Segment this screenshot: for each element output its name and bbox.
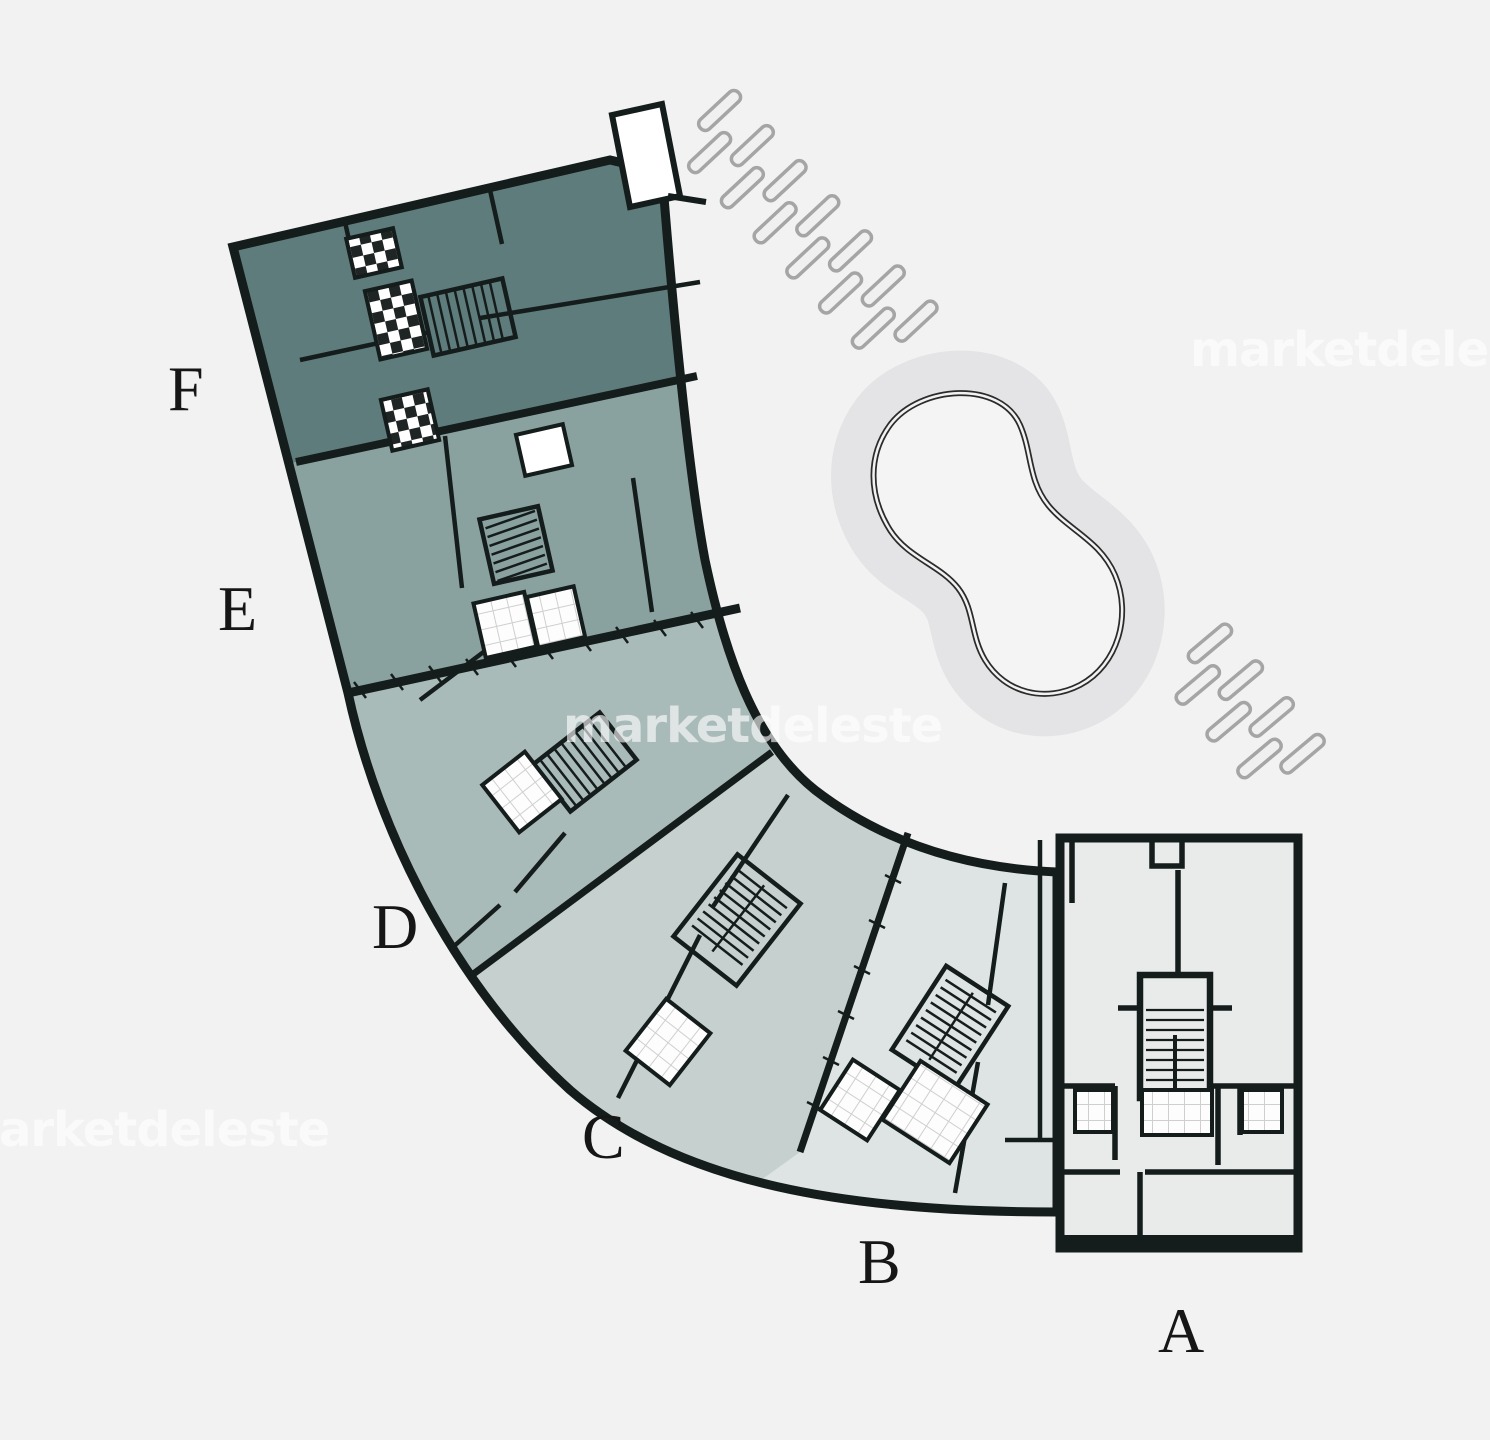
section-A-bathrooms bbox=[1075, 1090, 1282, 1135]
section-label-C[interactable]: C bbox=[582, 1101, 625, 1172]
section-label-D[interactable]: D bbox=[372, 891, 418, 962]
section-label-F[interactable]: F bbox=[168, 353, 204, 424]
floor-plan-stage: F E D C B A marketdeleste marketdeleste … bbox=[0, 0, 1490, 1440]
section-label-A[interactable]: A bbox=[1158, 1295, 1204, 1366]
section-label-E[interactable]: E bbox=[218, 573, 257, 644]
watermark-center: marketdeleste bbox=[563, 698, 942, 754]
section-label-B[interactable]: B bbox=[858, 1226, 901, 1297]
section-A-bottom-wall bbox=[1060, 1235, 1298, 1249]
watermark-top-right: marketdeleste bbox=[1190, 322, 1490, 378]
floor-plan-canvas: F E D C B A marketdeleste marketdeleste … bbox=[0, 0, 1490, 1440]
watermark-bottom-left: marketdeleste bbox=[0, 1102, 329, 1158]
section-A-block[interactable] bbox=[1040, 838, 1298, 1249]
